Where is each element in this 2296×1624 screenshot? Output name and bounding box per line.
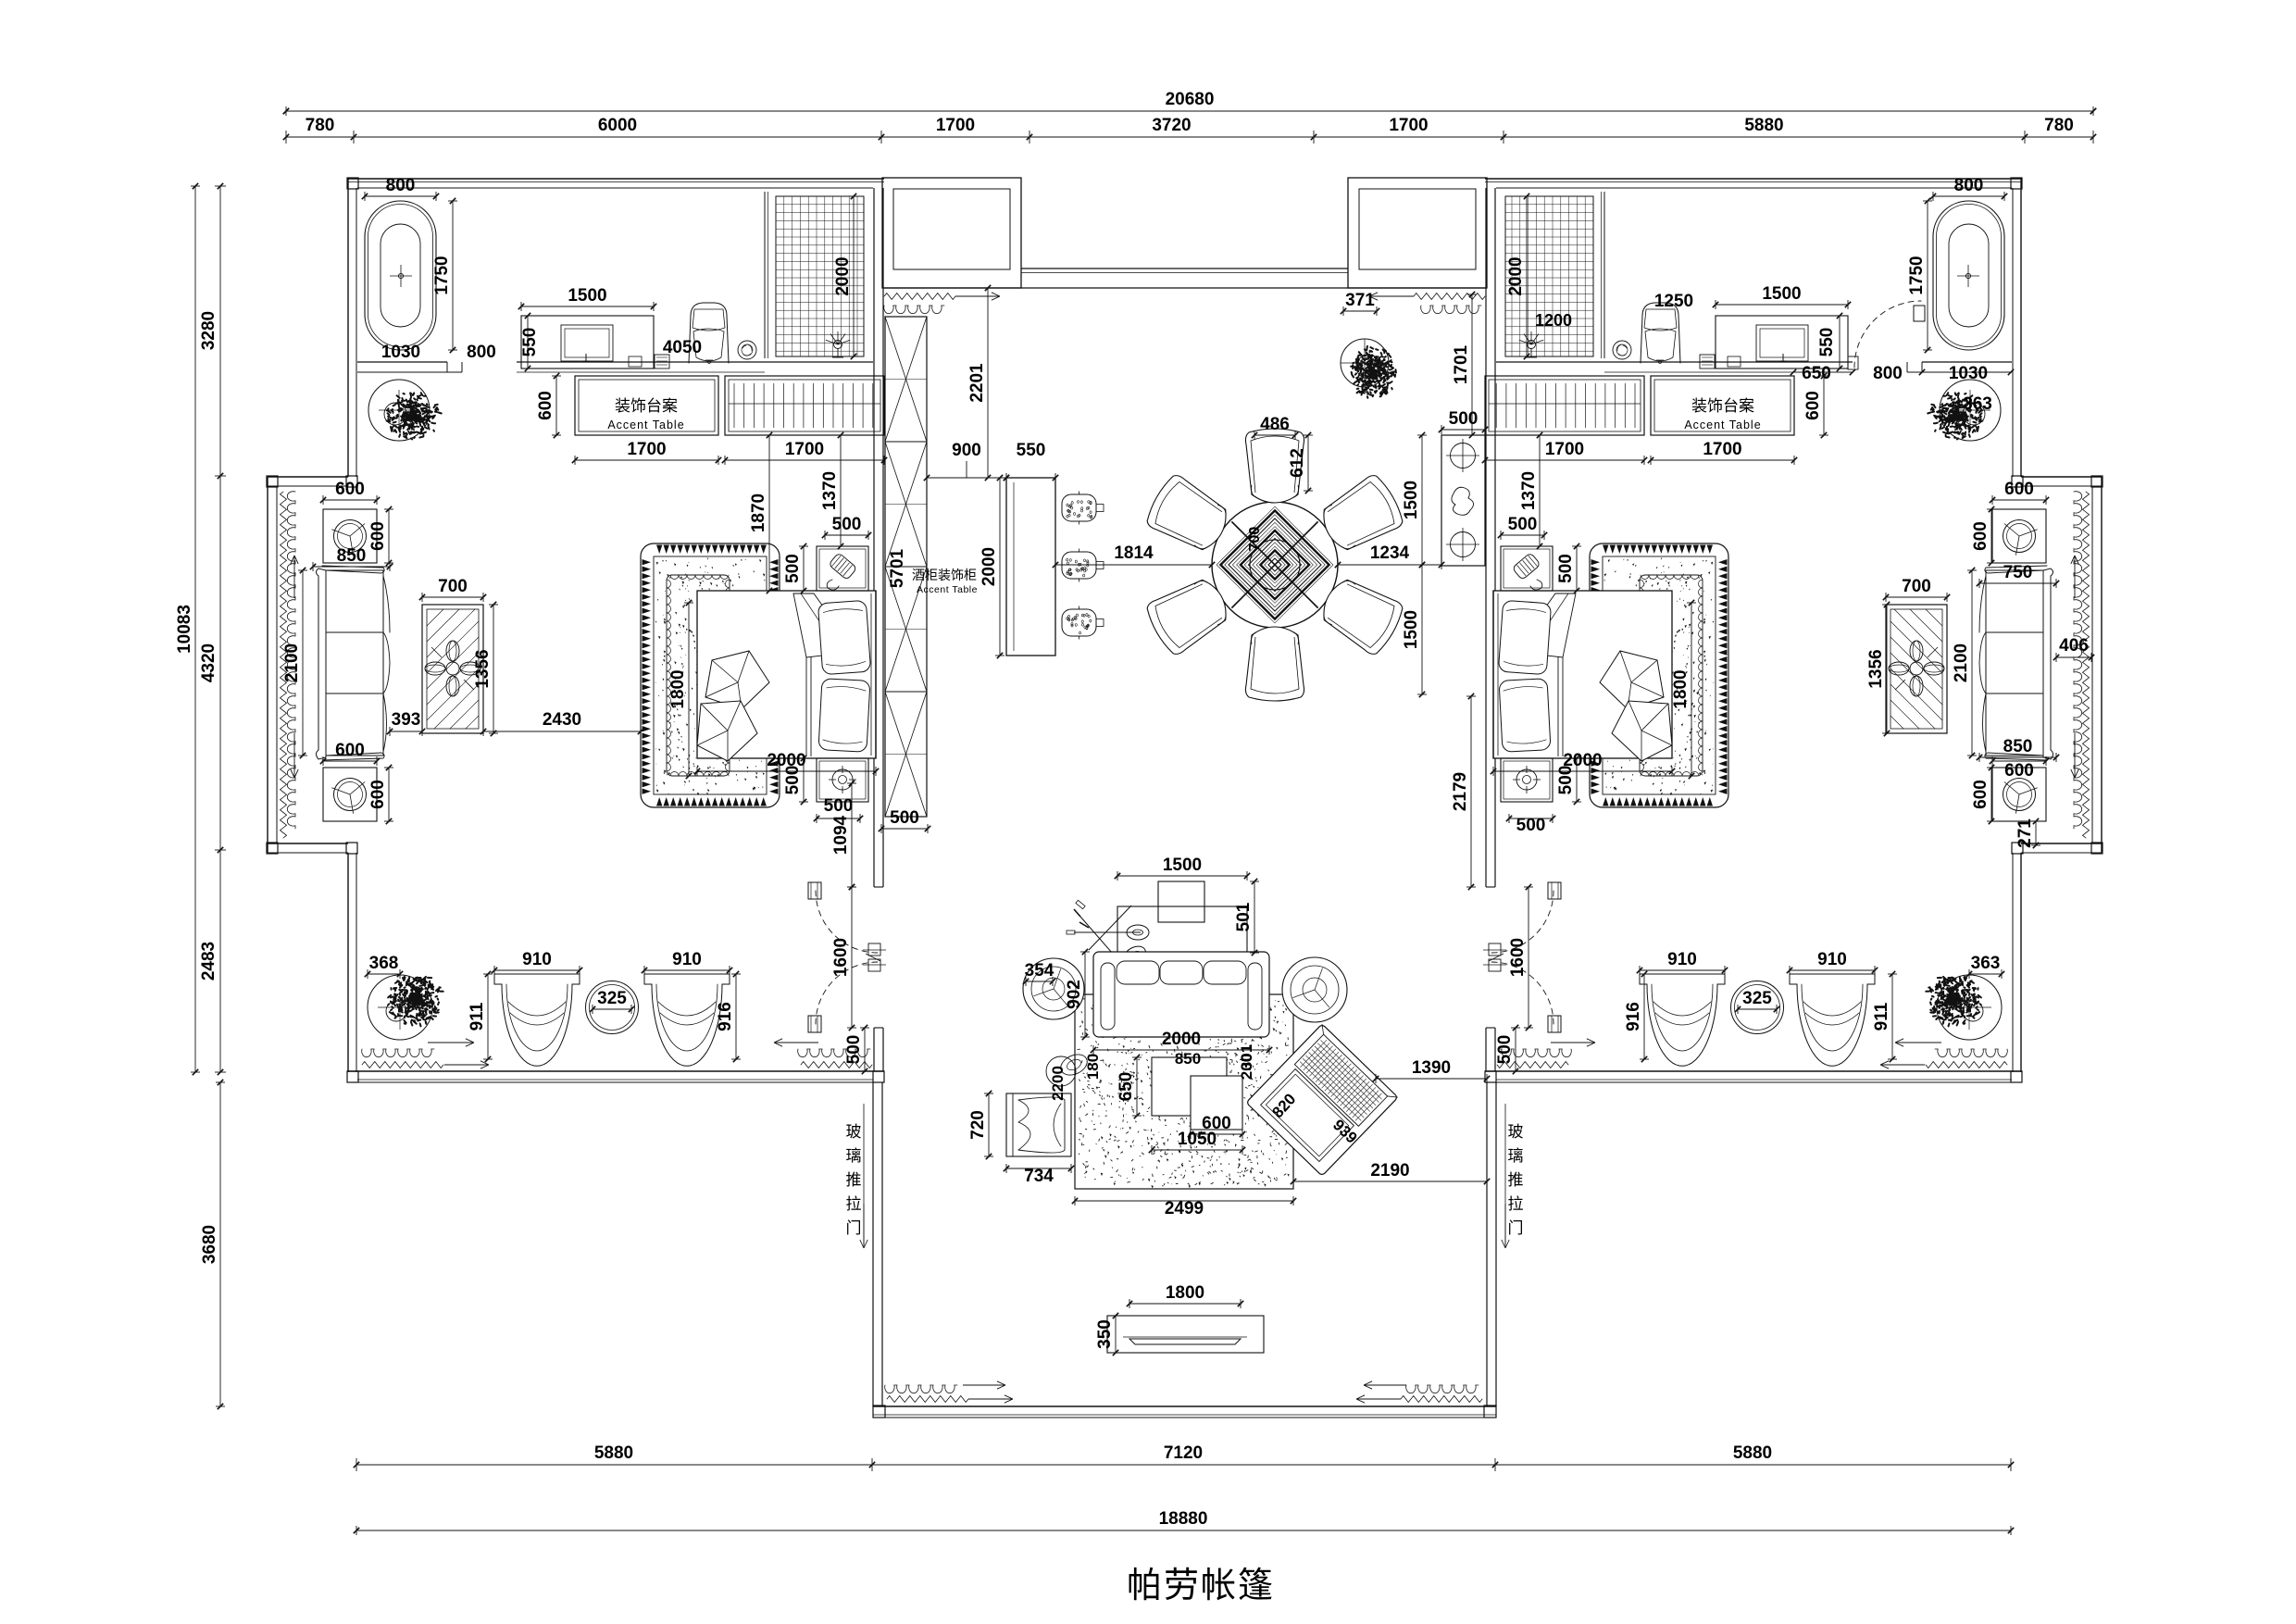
svg-text:5880: 5880	[1744, 116, 1783, 135]
svg-text:1600: 1600	[831, 938, 851, 977]
svg-text:1500: 1500	[1163, 856, 1202, 875]
svg-text:700: 700	[438, 577, 468, 596]
svg-text:750: 750	[2003, 563, 2033, 582]
svg-text:2000: 2000	[1162, 1030, 1201, 1049]
svg-text:Accent Table: Accent Table	[607, 418, 684, 431]
svg-text:玻: 玻	[846, 1123, 862, 1141]
svg-text:1500: 1500	[1402, 610, 1421, 649]
svg-text:910: 910	[672, 950, 702, 969]
svg-text:325: 325	[597, 989, 627, 1008]
svg-text:2000: 2000	[1563, 751, 1602, 770]
svg-text:180: 180	[1084, 1054, 1102, 1080]
svg-text:500: 500	[1449, 409, 1479, 429]
svg-text:600: 600	[368, 521, 388, 551]
svg-text:1800: 1800	[668, 669, 688, 708]
svg-text:10083: 10083	[175, 605, 194, 654]
svg-text:4050: 4050	[663, 338, 702, 357]
svg-text:850: 850	[1175, 1050, 1201, 1068]
svg-text:1200: 1200	[1535, 311, 1572, 330]
svg-text:Accent Table: Accent Table	[1684, 418, 1761, 431]
svg-text:3680: 3680	[200, 1225, 219, 1264]
svg-text:500: 500	[1516, 816, 1546, 835]
svg-text:拉: 拉	[846, 1195, 862, 1213]
svg-text:门: 门	[1508, 1219, 1524, 1237]
svg-text:3720: 3720	[1152, 116, 1191, 135]
svg-text:1870: 1870	[749, 493, 768, 532]
svg-text:1234: 1234	[1370, 543, 1410, 563]
svg-text:1370: 1370	[1519, 471, 1539, 510]
svg-text:486: 486	[1260, 415, 1290, 434]
svg-text:1750: 1750	[1907, 256, 1927, 294]
svg-text:1701: 1701	[1452, 344, 1471, 384]
svg-text:500: 500	[890, 808, 919, 828]
svg-text:200: 200	[1238, 1054, 1255, 1080]
svg-text:2483: 2483	[199, 942, 218, 981]
svg-text:璃: 璃	[1508, 1147, 1524, 1165]
svg-text:500: 500	[1508, 515, 1538, 534]
svg-text:2200: 2200	[1049, 1066, 1067, 1101]
svg-text:1700: 1700	[627, 440, 666, 459]
svg-text:装饰台案: 装饰台案	[615, 397, 678, 415]
svg-text:850: 850	[337, 546, 367, 566]
svg-text:推: 推	[1508, 1171, 1524, 1189]
svg-text:600: 600	[368, 780, 388, 809]
svg-text:500: 500	[783, 554, 803, 583]
svg-text:1030: 1030	[1949, 364, 1988, 383]
svg-text:500: 500	[832, 515, 862, 534]
svg-text:734: 734	[1024, 1167, 1054, 1186]
svg-text:1370: 1370	[820, 471, 840, 510]
svg-text:推: 推	[846, 1171, 862, 1189]
svg-text:600: 600	[335, 480, 365, 499]
svg-text:2430: 2430	[543, 710, 581, 730]
svg-text:7120: 7120	[1164, 1443, 1203, 1463]
svg-text:5880: 5880	[594, 1443, 633, 1463]
svg-text:1050: 1050	[1178, 1130, 1217, 1149]
svg-text:900: 900	[952, 441, 981, 460]
svg-text:501: 501	[1234, 902, 1254, 931]
svg-text:500: 500	[844, 1035, 864, 1065]
svg-text:325: 325	[1742, 989, 1772, 1008]
svg-text:600: 600	[2004, 480, 2034, 499]
svg-text:550: 550	[1817, 328, 1837, 357]
svg-text:700: 700	[1247, 527, 1263, 552]
svg-text:4320: 4320	[199, 643, 218, 682]
svg-text:550: 550	[520, 328, 540, 357]
svg-text:2499: 2499	[1165, 1199, 1204, 1218]
svg-text:600: 600	[335, 741, 365, 760]
svg-text:1600: 1600	[1508, 938, 1528, 977]
svg-text:2100: 2100	[1952, 643, 1971, 682]
svg-text:720: 720	[968, 1110, 988, 1140]
svg-text:916: 916	[1624, 1002, 1643, 1031]
svg-text:1500: 1500	[1402, 481, 1421, 519]
svg-text:550: 550	[1017, 441, 1046, 460]
svg-text:1700: 1700	[1545, 440, 1584, 459]
svg-text:6000: 6000	[598, 116, 637, 135]
svg-text:1800: 1800	[1671, 669, 1691, 708]
svg-text:600: 600	[1971, 780, 1990, 809]
svg-text:1700: 1700	[936, 116, 975, 135]
svg-text:500: 500	[1556, 554, 1576, 583]
svg-text:1800: 1800	[1166, 1283, 1204, 1303]
svg-text:910: 910	[1817, 950, 1847, 969]
svg-text:600: 600	[1971, 521, 1990, 551]
svg-text:20680: 20680	[1166, 90, 1215, 109]
svg-text:帕劳帐篷: 帕劳帐篷	[1127, 1567, 1275, 1605]
svg-text:1500: 1500	[568, 286, 606, 306]
svg-text:3280: 3280	[199, 311, 218, 350]
svg-text:600: 600	[1803, 391, 1823, 420]
svg-text:850: 850	[2003, 737, 2033, 756]
svg-text:玻: 玻	[1508, 1123, 1524, 1141]
svg-text:拉: 拉	[1508, 1195, 1524, 1213]
svg-text:363: 363	[1971, 954, 2001, 973]
svg-text:1356: 1356	[1866, 649, 1886, 688]
svg-text:1094: 1094	[831, 815, 851, 855]
svg-text:Accent Table: Accent Table	[917, 584, 978, 595]
svg-text:2000: 2000	[1506, 256, 1526, 295]
svg-text:612: 612	[1288, 448, 1307, 478]
svg-text:500: 500	[824, 796, 854, 816]
svg-text:18880: 18880	[1159, 1509, 1208, 1529]
svg-text:1030: 1030	[381, 343, 420, 362]
svg-text:800: 800	[1873, 364, 1903, 383]
svg-text:780: 780	[2044, 116, 2074, 135]
svg-text:406: 406	[2059, 636, 2089, 656]
svg-text:800: 800	[386, 176, 416, 195]
svg-text:800: 800	[467, 343, 496, 362]
svg-text:910: 910	[522, 950, 552, 969]
svg-text:350: 350	[1095, 1319, 1115, 1349]
svg-text:1750: 1750	[432, 256, 452, 294]
svg-text:2000: 2000	[767, 751, 805, 770]
svg-text:911: 911	[468, 1002, 487, 1031]
svg-text:1814: 1814	[1114, 543, 1154, 563]
svg-text:装饰台案: 装饰台案	[1691, 397, 1754, 415]
svg-text:600: 600	[536, 391, 555, 420]
svg-text:780: 780	[306, 116, 335, 135]
svg-text:916: 916	[716, 1002, 735, 1031]
svg-text:393: 393	[392, 710, 421, 730]
svg-text:2201: 2201	[967, 363, 987, 403]
svg-text:1700: 1700	[785, 440, 824, 459]
svg-text:1700: 1700	[1389, 116, 1428, 135]
svg-text:500: 500	[1495, 1035, 1515, 1065]
svg-text:800: 800	[1954, 176, 1984, 195]
svg-text:1250: 1250	[1654, 292, 1693, 311]
svg-text:璃: 璃	[846, 1147, 862, 1165]
svg-text:368: 368	[369, 954, 399, 973]
svg-text:1500: 1500	[1762, 284, 1801, 304]
svg-text:5880: 5880	[1733, 1443, 1772, 1463]
svg-text:600: 600	[2004, 761, 2034, 781]
svg-text:1356: 1356	[473, 649, 493, 688]
svg-text:371: 371	[1345, 291, 1375, 310]
svg-text:1700: 1700	[1703, 440, 1741, 459]
svg-text:门: 门	[846, 1219, 862, 1237]
svg-text:2190: 2190	[1370, 1161, 1409, 1181]
svg-text:910: 910	[1667, 950, 1697, 969]
svg-text:2000: 2000	[980, 547, 999, 586]
svg-text:2000: 2000	[833, 256, 853, 295]
svg-text:酒柜装饰柜: 酒柜装饰柜	[912, 568, 977, 582]
svg-text:2179: 2179	[1451, 772, 1470, 811]
svg-text:354: 354	[1025, 961, 1054, 981]
svg-text:2100: 2100	[282, 643, 302, 682]
svg-text:363: 363	[1963, 394, 1992, 414]
svg-text:271: 271	[2015, 818, 2035, 848]
svg-text:5701: 5701	[888, 548, 907, 588]
svg-text:902: 902	[1065, 980, 1084, 1009]
svg-text:700: 700	[1902, 577, 1931, 596]
svg-text:650: 650	[1117, 1072, 1136, 1102]
svg-text:911: 911	[1872, 1002, 1891, 1031]
svg-text:1390: 1390	[1412, 1058, 1451, 1078]
